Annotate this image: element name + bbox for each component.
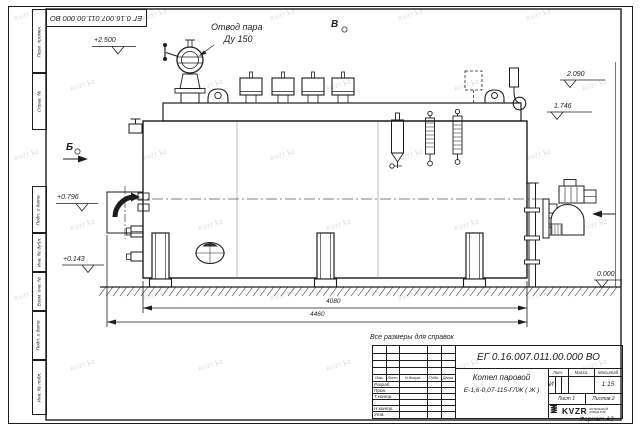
- mass-header: Масса: [568, 368, 594, 376]
- frame-column-inv-podl: Инв. № подл.: [32, 359, 47, 415]
- elevation-left-upper: +0.796: [57, 194, 79, 201]
- frame-column-sprav-no: Справ. №: [32, 72, 47, 130]
- view-label-b: Б: [66, 143, 73, 153]
- rotated-view-icon: [75, 149, 80, 154]
- lit-header: Лит.: [548, 368, 568, 376]
- sheet-number: Лист 1: [548, 393, 585, 404]
- dimension-4080: 4080: [326, 299, 340, 306]
- col-header-izm: Изм.: [373, 374, 386, 381]
- frame-column-podp-data-2: Подп. и дата: [32, 310, 47, 361]
- lifting-lug-left: [208, 89, 228, 103]
- steam-callout-line1: Отвод пара: [211, 23, 262, 32]
- left-top-valve: [129, 119, 142, 133]
- steam-outlet-valve: [164, 40, 206, 103]
- corner-stamp-text: ЕГ 0.16.007.011.00.000 ВО: [50, 14, 142, 23]
- water-gauge-2: [426, 111, 435, 166]
- elevation-steam: +2.500: [94, 37, 116, 44]
- elevation-ground: 0.000: [597, 271, 615, 278]
- scale-value: 1:15: [594, 376, 622, 393]
- water-gauge-3: [453, 109, 462, 164]
- boiler-body: [133, 103, 547, 278]
- callout-leader: [199, 45, 214, 56]
- view-label-v: В: [331, 20, 338, 30]
- col-header-list: Лист: [386, 374, 399, 381]
- frame-column-perv-primen: Перв. примен.: [32, 9, 47, 74]
- title-block: ЕГ 0.16.007.011.00.000 ВО Котел паровой …: [372, 345, 623, 419]
- elevation-marks: [56, 47, 622, 288]
- steam-callout-line2: Ду 150: [224, 35, 252, 44]
- safety-valve: [510, 68, 526, 121]
- col-header-docum: N докум.: [399, 374, 427, 381]
- scale-header: Масштаб: [594, 368, 622, 376]
- sheets-total: Листов 2: [585, 393, 622, 404]
- brand-subtitle-2: ЗАВОД РЗР: [589, 411, 608, 414]
- product-name: Котел паровой: [455, 370, 548, 384]
- drawing-designation: ЕГ 0.16.007.011.00.000 ВО: [455, 346, 622, 368]
- left-nozzles: [127, 226, 144, 261]
- frame-column-podp-data-1: Подп. и дата: [32, 186, 47, 234]
- lifting-lug-right: [485, 90, 504, 103]
- feed-pump: [543, 180, 596, 239]
- hidden-fitting-dashed: [465, 71, 482, 103]
- elevation-left-lower: +0.143: [63, 256, 85, 263]
- col-header-podp: Подп.: [427, 374, 441, 381]
- rotated-view-icon: [342, 27, 347, 32]
- col-header-data: Дата: [441, 374, 455, 381]
- kvzr-logo-icon: [548, 404, 559, 415]
- row-utv: Утв.: [374, 411, 399, 417]
- brand-name: KVZR: [562, 406, 587, 416]
- view-label-v-icon: [342, 27, 347, 32]
- manhole: [195, 242, 225, 264]
- product-model: Е-1,6-0,07-115-ГЛЖ ( Ж ): [455, 384, 548, 396]
- elevation-right-upper: 2.090: [567, 71, 585, 78]
- lit-value: И: [548, 376, 555, 393]
- drawing-sheet: kvzr.kzkvzr.kzkvzr.kzkvzr.kzkvzr.kzkvzr.…: [0, 0, 644, 430]
- elevation-right-lower: 1.746: [554, 103, 572, 110]
- format-note: Формат А3: [570, 417, 623, 423]
- dimension-4460: 4460: [310, 312, 324, 319]
- corner-stamp: ЕГ 0.16.007.011.00.000 ВО: [46, 9, 147, 27]
- reference-note: Все размеры для справок: [370, 334, 454, 341]
- top-hatch-covers: [240, 72, 354, 103]
- ground: [99, 287, 621, 296]
- frame-column-inv-dubl: Инв. № дубл.: [32, 232, 47, 273]
- frame-column-vzam-inv: Взам. инв. №: [32, 271, 47, 312]
